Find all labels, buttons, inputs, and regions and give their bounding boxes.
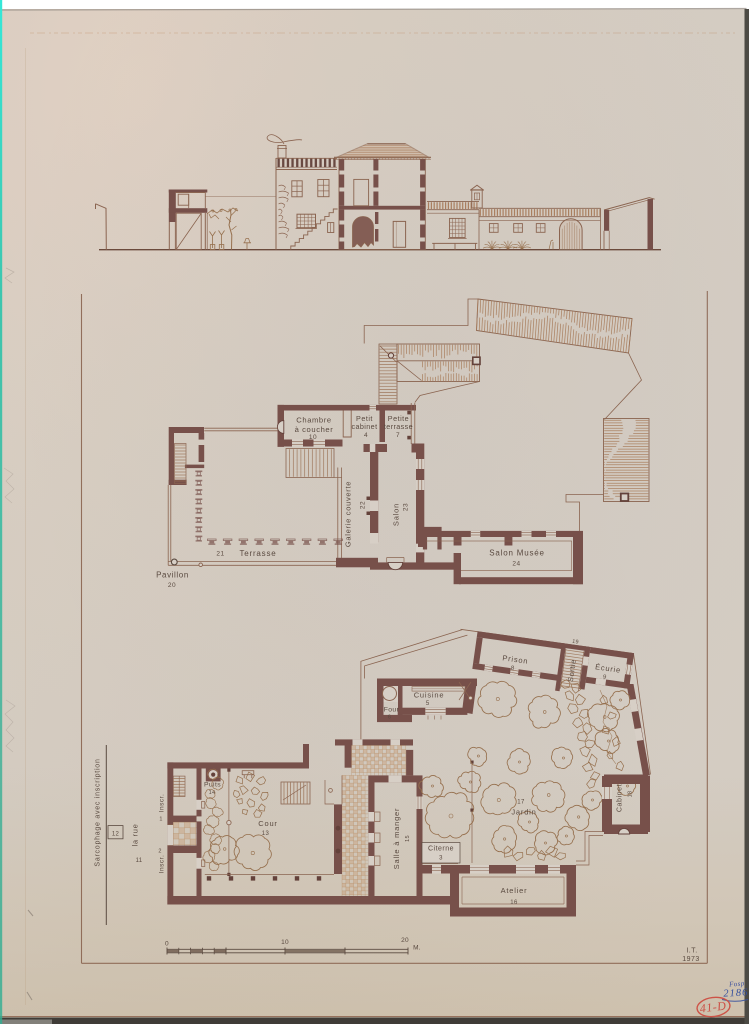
svg-text:Galerie couverte: Galerie couverte: [344, 481, 353, 547]
svg-text:Salon: Salon: [392, 503, 401, 526]
svg-text:5: 5: [426, 701, 430, 707]
svg-text:terrasse: terrasse: [384, 422, 413, 431]
svg-text:6: 6: [388, 714, 391, 720]
svg-text:Cour: Cour: [258, 819, 277, 828]
svg-text:4: 4: [364, 432, 368, 439]
svg-text:Four: Four: [384, 707, 400, 714]
svg-text:Jardin: Jardin: [511, 808, 536, 817]
svg-text:M.: M.: [413, 945, 421, 952]
svg-text:à coucher: à coucher: [295, 425, 334, 434]
svg-text:12: 12: [112, 832, 120, 838]
svg-text:Cabinet: Cabinet: [617, 784, 624, 812]
svg-text:Cuisine: Cuisine: [414, 691, 445, 700]
svg-text:Inscr.: Inscr.: [159, 794, 166, 813]
svg-text:Sarcophage avec inscription: Sarcophage avec inscription: [95, 758, 102, 866]
svg-text:23: 23: [403, 503, 410, 511]
svg-text:17: 17: [517, 800, 525, 806]
svg-text:22: 22: [360, 501, 367, 509]
svg-text:20: 20: [168, 582, 176, 589]
svg-text:Salon Musée: Salon Musée: [489, 549, 545, 558]
svg-text:21: 21: [216, 551, 224, 558]
svg-text:20: 20: [401, 937, 409, 944]
svg-text:0: 0: [165, 941, 169, 948]
svg-text:16: 16: [510, 900, 518, 906]
svg-text:Pavillon: Pavillon: [156, 571, 189, 580]
svg-text:Terrasse: Terrasse: [239, 549, 276, 558]
svg-text:7: 7: [396, 432, 400, 439]
svg-text:2186: 2186: [723, 987, 749, 999]
svg-text:24: 24: [512, 561, 520, 568]
svg-text:cabinet: cabinet: [352, 422, 378, 431]
svg-text:19: 19: [572, 639, 579, 646]
svg-text:18: 18: [628, 791, 634, 798]
svg-text:1: 1: [159, 817, 162, 823]
svg-text:Salle à manger: Salle à manger: [392, 808, 401, 870]
svg-text:Atelier: Atelier: [501, 886, 528, 895]
svg-text:10: 10: [281, 939, 289, 946]
svg-text:Puits: Puits: [204, 782, 221, 789]
svg-text:3: 3: [439, 856, 443, 862]
svg-text:1973: 1973: [682, 956, 700, 963]
svg-text:15: 15: [405, 835, 411, 842]
svg-text:I.T.: I.T.: [686, 948, 697, 955]
svg-text:13: 13: [262, 831, 270, 837]
svg-text:11: 11: [136, 858, 143, 864]
svg-text:Inscr.: Inscr.: [159, 855, 166, 874]
svg-text:10: 10: [309, 434, 317, 441]
svg-text:Citerne: Citerne: [428, 846, 454, 853]
svg-text:Chambre: Chambre: [296, 416, 331, 425]
svg-text:2: 2: [158, 849, 161, 855]
svg-text:la rue: la rue: [131, 824, 140, 847]
